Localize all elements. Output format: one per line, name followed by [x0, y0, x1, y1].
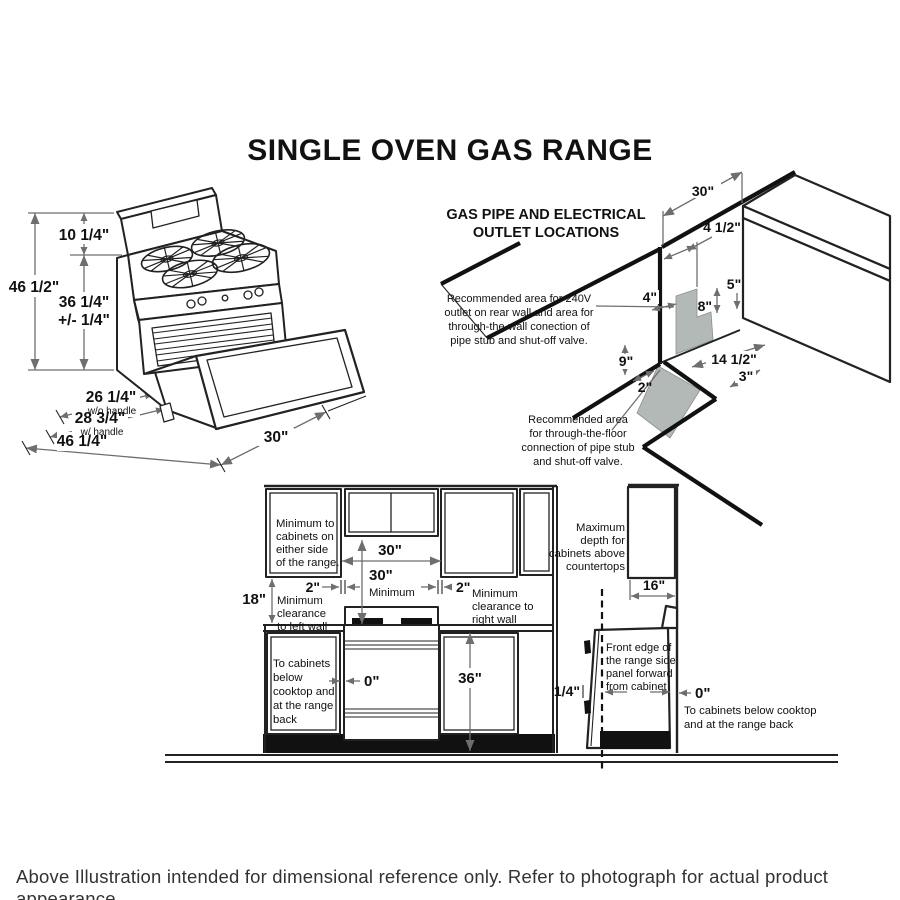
- svg-text:panel forward: panel forward: [606, 668, 673, 680]
- footer-note: Above Illustration intended for dimensio…: [16, 866, 896, 900]
- dim-14-5: 14 1/2": [711, 351, 757, 367]
- svg-text:depth for: depth for: [580, 535, 625, 547]
- svg-text:below: below: [273, 672, 303, 684]
- svg-text:right wall: right wall: [472, 614, 517, 626]
- dim-16: 16": [643, 577, 665, 593]
- front-edge-note: Front edge of the range side panel forwa…: [606, 642, 676, 693]
- svg-text:cabinets above: cabinets above: [549, 548, 625, 560]
- dim-36: 36": [458, 670, 482, 687]
- side-elevation-diagram: Maximum depth for cabinets above counter…: [549, 485, 817, 769]
- back-clearance-note: To cabinets below cooktop and at the ran…: [684, 705, 817, 731]
- svg-text:countertops: countertops: [566, 561, 625, 573]
- right-wall-note: Minimum clearance to right wall: [472, 588, 534, 626]
- svg-text:Minimum: Minimum: [277, 595, 323, 607]
- svg-text:and shut-off valve.: and shut-off valve.: [533, 456, 623, 468]
- svg-text:outlet on rear wall and area f: outlet on rear wall and area for: [444, 307, 594, 319]
- svg-text:Minimum to: Minimum to: [276, 518, 334, 530]
- svg-text:clearance: clearance: [277, 608, 326, 620]
- svg-text:either side: either side: [276, 544, 328, 556]
- spec-sheet: SINGLE OVEN GAS RANGE: [0, 0, 900, 900]
- svg-text:pipe stub and shut-off valve.: pipe stub and shut-off valve.: [450, 335, 587, 347]
- svg-text:through-the-wall conection of: through-the-wall conection of: [448, 321, 590, 333]
- dim-4: 4": [643, 289, 657, 305]
- iso-range-drawing: 46 1/2" 10 1/4" 36 1/4" +/- 1/4" 26 1/4"…: [9, 188, 366, 472]
- dim-backguard-height: 10 1/4": [59, 227, 109, 244]
- dim-5: 5": [727, 276, 741, 292]
- dim-height-overall: 46 1/2": [9, 279, 59, 296]
- upper-cabinet-far-right: [520, 489, 553, 575]
- dim-2-left: 2": [306, 579, 320, 595]
- svg-text:at the range: at the range: [273, 700, 333, 712]
- dim-2: 2": [638, 379, 652, 395]
- dim-8: 8": [698, 298, 712, 314]
- dim-3: 3": [739, 368, 753, 384]
- svg-text:To cabinets: To cabinets: [273, 658, 330, 670]
- dim-2-right: 2": [456, 579, 470, 595]
- svg-text:clearance to: clearance to: [472, 601, 534, 613]
- svg-text:connection of pipe stub: connection of pipe stub: [521, 442, 634, 454]
- svg-text:the range side: the range side: [606, 655, 676, 667]
- svg-text:Recommended area for 240V: Recommended area for 240V: [447, 293, 592, 305]
- svg-text:for through-the-floor: for through-the-floor: [529, 428, 627, 440]
- dim-cooktop-height: 36 1/4": [59, 294, 109, 311]
- max-depth-note: Maximum depth for cabinets above counter…: [549, 522, 625, 573]
- svg-text:Front edge of: Front edge of: [606, 642, 672, 654]
- svg-text:To cabinets below cooktop: To cabinets below cooktop: [684, 705, 817, 717]
- dim-0-left: 0": [364, 673, 379, 690]
- dim-cooktop-height-tolerance: +/- 1/4": [58, 312, 110, 329]
- upper-cabinet-right: [441, 489, 517, 577]
- svg-text:and at the range back: and at the range back: [684, 719, 794, 731]
- dim-0-right: 0": [695, 685, 710, 702]
- dim-wall-30: 30": [692, 183, 714, 199]
- gas-pipe-diagram: GAS PIPE AND ELECTRICAL OUTLET LOCATIONS…: [441, 172, 890, 525]
- spec-diagram: 46 1/2" 10 1/4" 36 1/4" +/- 1/4" 26 1/4"…: [0, 0, 900, 900]
- svg-text:Minimum: Minimum: [472, 588, 518, 600]
- dim-18: 18": [242, 591, 266, 608]
- dim-9: 9": [619, 353, 633, 369]
- svg-text:cooktop and: cooktop and: [273, 686, 335, 698]
- svg-text:Recommended area: Recommended area: [528, 414, 629, 426]
- gas-heading-line1: GAS PIPE AND ELECTRICAL: [446, 207, 645, 223]
- dim-30-between-cabinets: 30": [378, 542, 402, 559]
- svg-text:from cabinet: from cabinet: [606, 681, 667, 693]
- svg-text:cabinets on: cabinets on: [276, 531, 334, 543]
- through-floor-area: [637, 366, 700, 438]
- dim-30-minimum: 30": [369, 567, 393, 584]
- range-front: [344, 625, 439, 740]
- svg-text:of the range.: of the range.: [276, 557, 339, 569]
- dim-depth-w-handle: 28 3/4": [75, 410, 125, 427]
- wall-cabinet-side: [628, 487, 675, 578]
- svg-text:Maximum: Maximum: [576, 522, 625, 534]
- dim-quarter-inch: 1/4": [554, 683, 580, 699]
- dim-depth-door-open: 46 1/4": [57, 433, 107, 450]
- svg-text:to left wall: to left wall: [277, 621, 327, 633]
- gas-heading-line2: OUTLET LOCATIONS: [473, 225, 620, 241]
- floor-outlet-note: Recommended area for through-the-floor c…: [521, 414, 634, 468]
- svg-text:back: back: [273, 714, 297, 726]
- dim-depth-wo-handle: 26 1/4": [86, 389, 136, 406]
- dim-30-minimum-sub: Minimum: [369, 587, 415, 599]
- range-backguard-side: [662, 606, 677, 628]
- door-handle: [584, 640, 591, 654]
- range-base-side: [600, 731, 670, 749]
- dim-range-width: 30": [264, 429, 289, 446]
- left-wall-note: Minimum clearance to left wall: [277, 595, 327, 633]
- drawer-handle: [584, 700, 591, 714]
- dim-4-5: 4 1/2": [703, 219, 741, 235]
- range-foot: [160, 403, 174, 422]
